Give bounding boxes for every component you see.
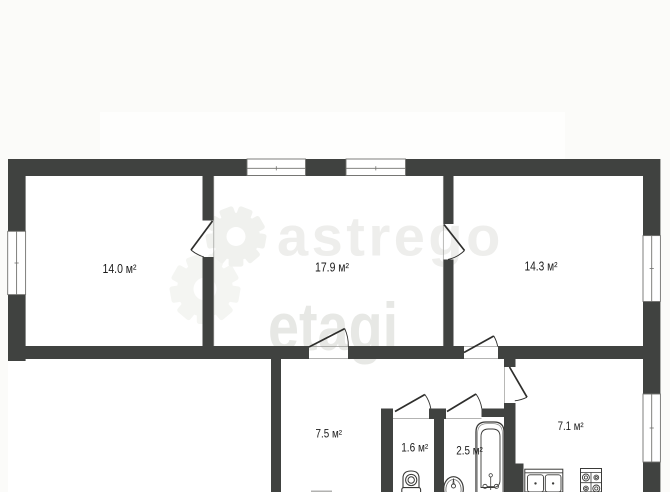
svg-text:14.0 м²: 14.0 м² xyxy=(103,261,138,276)
svg-text:7.1 м²: 7.1 м² xyxy=(558,421,584,433)
svg-text:14.3 м²: 14.3 м² xyxy=(525,259,559,274)
svg-text:17.9 м²: 17.9 м² xyxy=(315,260,350,275)
svg-text:astrego: astrego xyxy=(277,204,504,267)
svg-text:7.5 м²: 7.5 м² xyxy=(316,429,343,441)
svg-text:1.6 м²: 1.6 м² xyxy=(401,442,428,454)
svg-text:2.5 м²: 2.5 м² xyxy=(456,446,483,458)
